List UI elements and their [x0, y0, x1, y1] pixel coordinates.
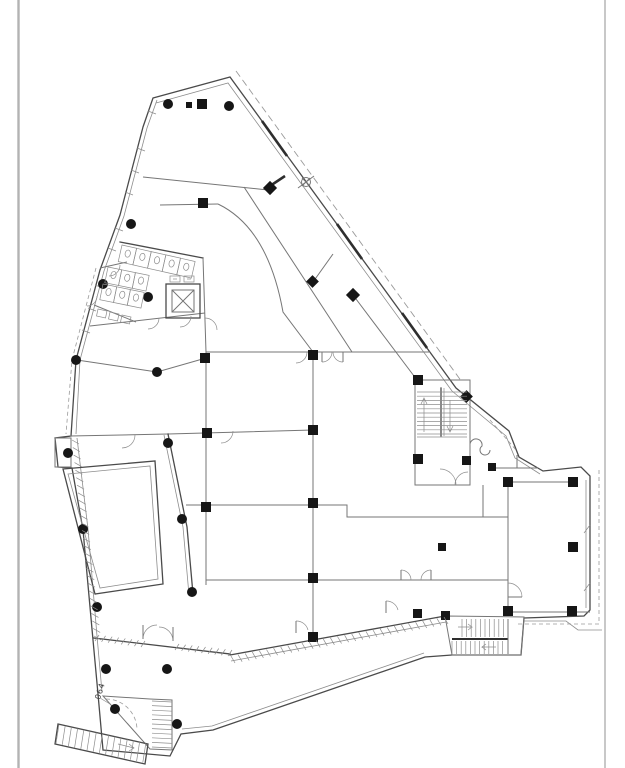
door-swings [87, 265, 522, 641]
exterior-walls [55, 77, 590, 756]
floor-plan-drawing: 064 [0, 0, 625, 768]
columns-square [186, 99, 578, 642]
drawing-sheet: 064 [0, 0, 625, 768]
elevator [166, 276, 200, 318]
wall-hatching [72, 440, 448, 663]
sheet-border-lines [19, 0, 606, 768]
interior-walls [55, 177, 602, 661]
dashed-canopy-lines [66, 71, 599, 624]
columns-round [63, 99, 234, 729]
diagonal-window-wall [262, 121, 427, 348]
